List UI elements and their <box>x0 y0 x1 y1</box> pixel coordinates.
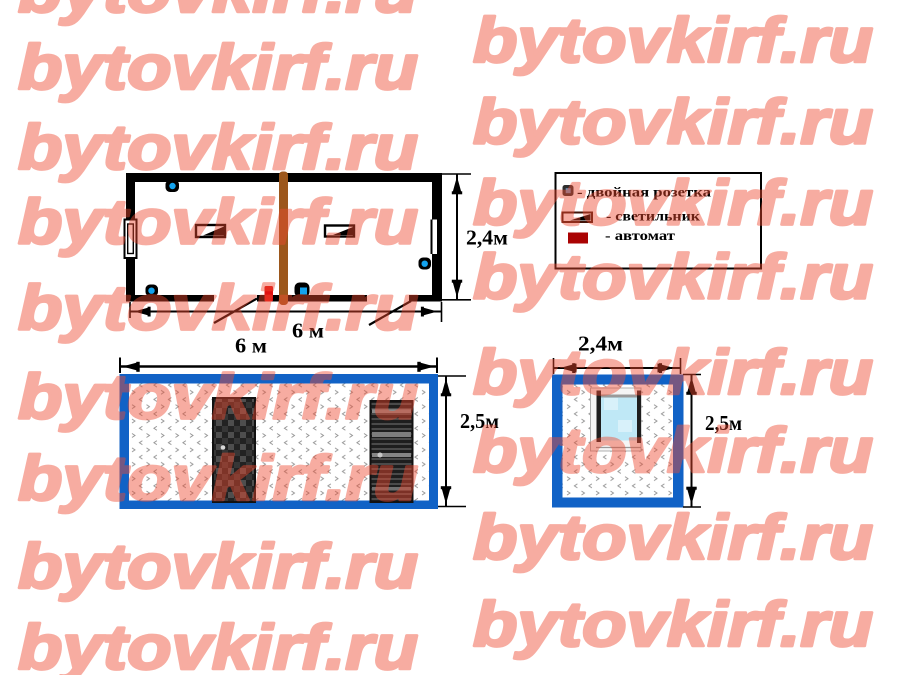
svg-text:bytovkirf.ru: bytovkirf.ru <box>18 33 418 103</box>
svg-text:bytovkirf.ru: bytovkirf.ru <box>18 113 418 183</box>
svg-text:bytovkirf.ru: bytovkirf.ru <box>18 0 418 26</box>
svg-text:bytovkirf.ru: bytovkirf.ru <box>473 416 873 486</box>
svg-text:bytovkirf.ru: bytovkirf.ru <box>18 363 418 433</box>
svg-text:bytovkirf.ru: bytovkirf.ru <box>18 444 418 514</box>
svg-text:bytovkirf.ru: bytovkirf.ru <box>18 532 418 602</box>
svg-text:bytovkirf.ru: bytovkirf.ru <box>473 503 873 573</box>
svg-text:bytovkirf.ru: bytovkirf.ru <box>18 188 418 258</box>
svg-text:bytovkirf.ru: bytovkirf.ru <box>473 168 873 238</box>
svg-text:bytovkirf.ru: bytovkirf.ru <box>18 613 418 675</box>
svg-text:bytovkirf.ru: bytovkirf.ru <box>18 274 418 344</box>
svg-text:bytovkirf.ru: bytovkirf.ru <box>473 338 873 408</box>
svg-text:bytovkirf.ru: bytovkirf.ru <box>473 88 873 158</box>
svg-text:bytovkirf.ru: bytovkirf.ru <box>473 242 873 312</box>
svg-text:bytovkirf.ru: bytovkirf.ru <box>473 6 873 76</box>
svg-text:bytovkirf.ru: bytovkirf.ru <box>473 590 873 660</box>
